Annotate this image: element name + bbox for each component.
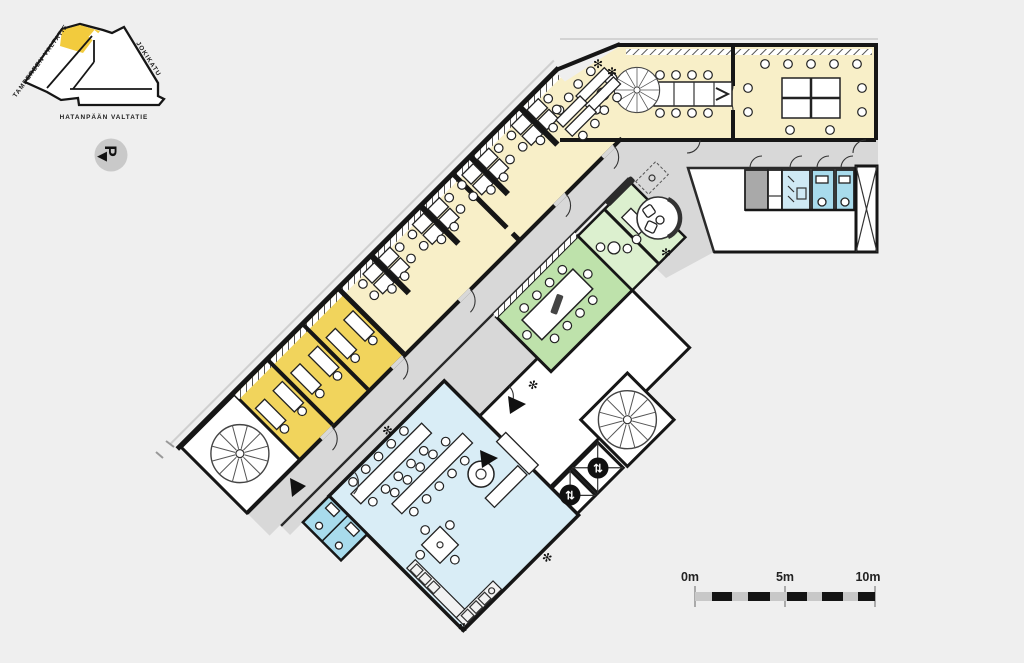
toilet-icon (818, 198, 826, 206)
curved-stair-icon (614, 67, 659, 112)
scale-label-10m: 10m (855, 570, 880, 584)
floor-plan-canvas: ✻ ✻ ✻ ✻ (0, 0, 1024, 663)
window-band (626, 49, 872, 55)
parking-icon: ◀ P (95, 139, 128, 172)
closet (768, 170, 782, 210)
toilet-icon (841, 198, 849, 206)
elevator-icon: ⇅ (565, 489, 575, 503)
floor-plan-page: ✻ ✻ ✻ ✻ (0, 0, 1024, 663)
sink-icon (816, 176, 828, 183)
plant-icon: ✻ (593, 57, 603, 71)
plant-icon: ✻ (661, 246, 671, 260)
parking-label: P (101, 145, 120, 156)
plant-icon: ✻ (607, 65, 617, 79)
meeting-pod (637, 197, 680, 239)
elevator-icon: ⇅ (593, 462, 603, 476)
sink-icon (839, 176, 850, 183)
street-label-hatanpaan-valtatie: HATANPÄÄN VALTATIE (60, 113, 149, 121)
scale-label-0m: 0m (681, 570, 699, 584)
scale-label-5m: 5m (776, 570, 794, 584)
storage-room (745, 170, 768, 210)
